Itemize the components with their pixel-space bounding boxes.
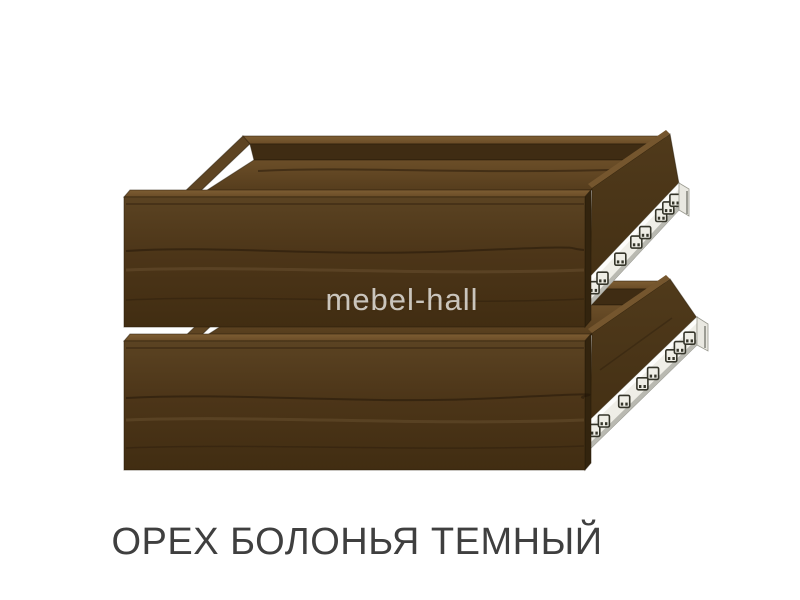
bottom-panel-right-edge: [585, 334, 591, 470]
top-panel-right-edge: [585, 190, 591, 327]
top-panel-top-edge: [124, 190, 591, 197]
top-drawer-back-wall-inner: [250, 144, 664, 160]
bottom-drawer-front-panel: [124, 334, 591, 470]
bottom-panel-face: [124, 341, 585, 470]
product-image: mebel-hall ОРЕХ БОЛОНЬЯ ТЕМНЫЙ: [0, 0, 800, 600]
bottom-panel-top-edge: [124, 334, 591, 341]
watermark-text: mebel-hall: [325, 284, 478, 315]
bottom-rail-end-cap: [697, 317, 708, 351]
product-caption: ОРЕХ БОЛОНЬЯ ТЕМНЫЙ: [111, 523, 602, 561]
top-drawer-back-wall-top: [243, 136, 668, 144]
